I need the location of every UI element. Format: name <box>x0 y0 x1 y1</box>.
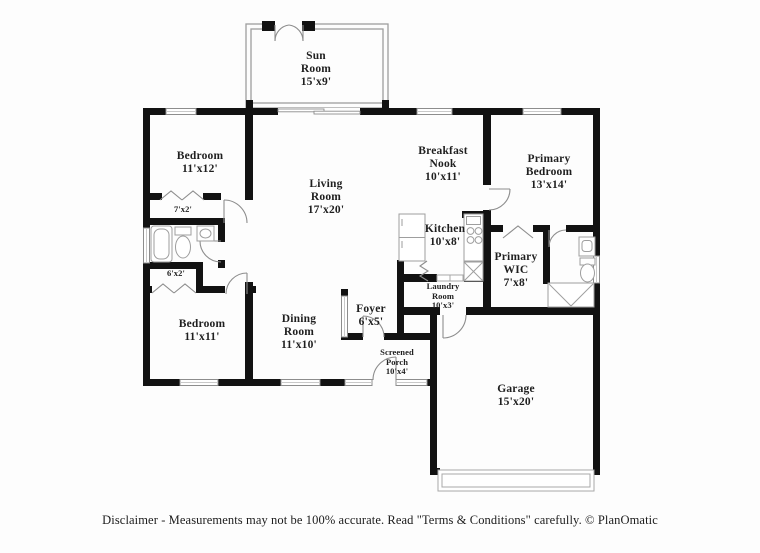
room-name: Sun Room <box>291 50 341 76</box>
room-label-laundry-room: Laundry Room 10'x3' <box>417 282 469 311</box>
room-dims: 10'x4' <box>371 367 423 377</box>
room-name: Bedroom <box>167 318 237 331</box>
room-dims: 7'x8' <box>486 277 546 290</box>
room-dims: 6'x2' <box>156 269 196 279</box>
room-label-primary-bedroom: Primary Bedroom 13'x14' <box>517 153 581 192</box>
room-dims: 15'x20' <box>486 396 546 409</box>
room-name: Foyer <box>346 303 396 316</box>
shower-icon <box>548 283 594 307</box>
room-label-sun-room: Sun Room 15'x9' <box>291 50 341 89</box>
room-label-kitchen: Kitchen 10'x8' <box>415 223 475 249</box>
dishwasher-icon <box>464 262 483 281</box>
room-label-screened-porch: Screened Porch 10'x4' <box>371 348 423 377</box>
room-name: Living Room <box>300 178 352 204</box>
bathtub-icon <box>151 226 172 262</box>
room-dims: 17'x20' <box>300 204 352 217</box>
room-label-closet-6x2: 6'x2' <box>156 269 196 279</box>
room-dims: 13'x14' <box>517 179 581 192</box>
garage-door-icon <box>438 470 594 491</box>
room-label-bedroom-bottom: Bedroom 11'x11' <box>167 318 237 344</box>
room-name: Laundry Room <box>417 282 469 301</box>
primary-vanity-sink-icon <box>579 237 595 256</box>
room-dims: 15'x9' <box>291 76 341 89</box>
room-label-breakfast-nook: Breakfast Nook 10'x11' <box>412 145 474 184</box>
primary-toilet-icon <box>580 258 595 282</box>
room-label-bedroom-top: Bedroom 11'x12' <box>165 150 235 176</box>
room-label-foyer: Foyer 6'x5' <box>346 303 396 329</box>
room-name: Dining Room <box>274 313 324 339</box>
room-dims: 10'x8' <box>415 236 475 249</box>
room-dims: 11'x11' <box>167 331 237 344</box>
room-dims: 10'x3' <box>417 301 469 311</box>
room-name: Breakfast Nook <box>412 145 474 171</box>
room-name: Garage <box>486 383 546 396</box>
room-name: Screened Porch <box>371 348 423 367</box>
floorplan-drawing <box>0 0 760 553</box>
room-label-closet-7x2: 7'x2' <box>163 205 203 215</box>
room-dims: 11'x12' <box>165 163 235 176</box>
room-name: Primary Bedroom <box>517 153 581 179</box>
toilet-icon <box>175 227 191 258</box>
room-dims: 6'x5' <box>346 316 396 329</box>
floorplan-page: Sun Room 15'x9' Bedroom 11'x12' 7'x2' 6'… <box>0 0 760 553</box>
room-dims: 7'x2' <box>163 205 203 215</box>
room-dims: 10'x11' <box>412 171 474 184</box>
room-label-primary-wic: Primary WIC 7'x8' <box>486 251 546 290</box>
room-label-dining-room: Dining Room 11'x10' <box>274 313 324 352</box>
room-label-garage: Garage 15'x20' <box>486 383 546 409</box>
room-label-living-room: Living Room 17'x20' <box>300 178 352 217</box>
room-name: Kitchen <box>415 223 475 236</box>
room-name: Bedroom <box>165 150 235 163</box>
room-name: Primary WIC <box>486 251 546 277</box>
sink-icon <box>197 226 214 241</box>
disclaimer-text: Disclaimer - Measurements may not be 100… <box>0 513 760 528</box>
room-dims: 11'x10' <box>274 339 324 352</box>
